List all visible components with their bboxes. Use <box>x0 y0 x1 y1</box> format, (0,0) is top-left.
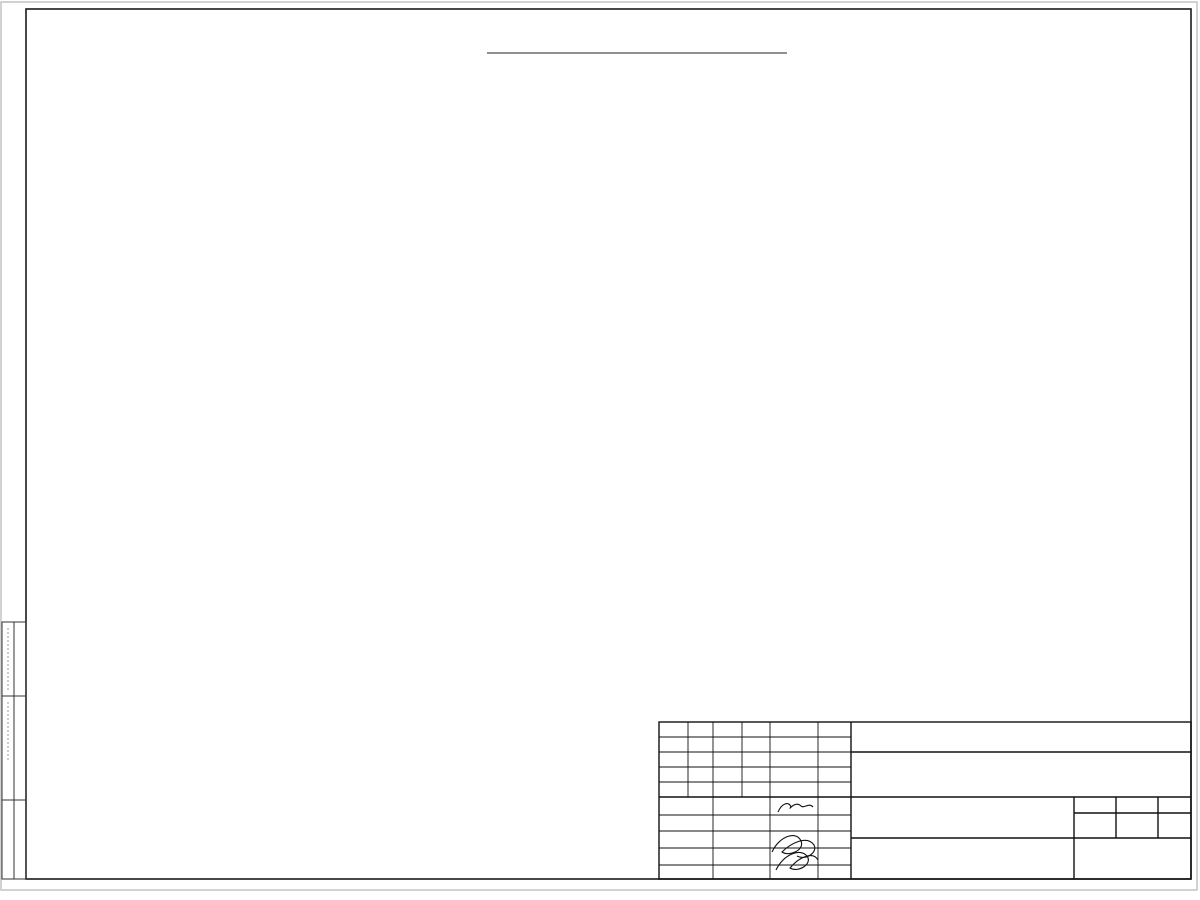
floor-plan-svg <box>0 0 1200 900</box>
sheet-edge <box>1 2 1197 890</box>
drawing-sheet <box>0 0 1200 900</box>
